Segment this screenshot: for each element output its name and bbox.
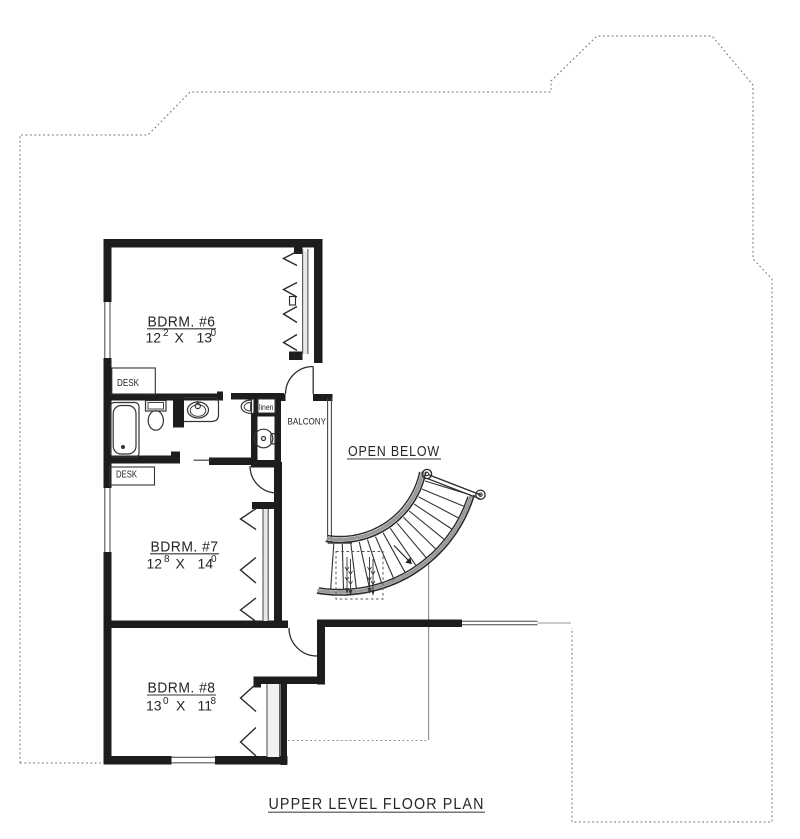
svg-text:8: 8: [211, 696, 217, 707]
svg-text:BDRM. #7: BDRM. #7: [151, 539, 219, 556]
svg-text:OPEN BELOW: OPEN BELOW: [348, 443, 440, 460]
svg-text:0: 0: [211, 328, 217, 339]
svg-text:13: 13: [146, 698, 162, 714]
svg-text:X: X: [175, 330, 185, 346]
svg-text:BDRM. #6: BDRM. #6: [148, 314, 216, 331]
svg-text:DESK: DESK: [117, 377, 139, 389]
svg-text:BDRM. #8: BDRM. #8: [148, 680, 216, 697]
svg-text:12: 12: [146, 330, 162, 346]
svg-text:0: 0: [163, 696, 169, 707]
svg-text:12: 12: [147, 556, 163, 572]
svg-text:BALCONY: BALCONY: [288, 417, 327, 428]
svg-text:8: 8: [164, 554, 170, 565]
svg-text:linen: linen: [259, 403, 274, 412]
svg-text:2: 2: [163, 328, 169, 339]
svg-text:DESK: DESK: [116, 469, 137, 481]
svg-text:0: 0: [211, 554, 217, 565]
svg-text:UPPER LEVEL FLOOR PLAN: UPPER LEVEL FLOOR PLAN: [269, 796, 485, 813]
svg-text:X: X: [176, 698, 186, 714]
svg-text:X: X: [176, 556, 186, 572]
